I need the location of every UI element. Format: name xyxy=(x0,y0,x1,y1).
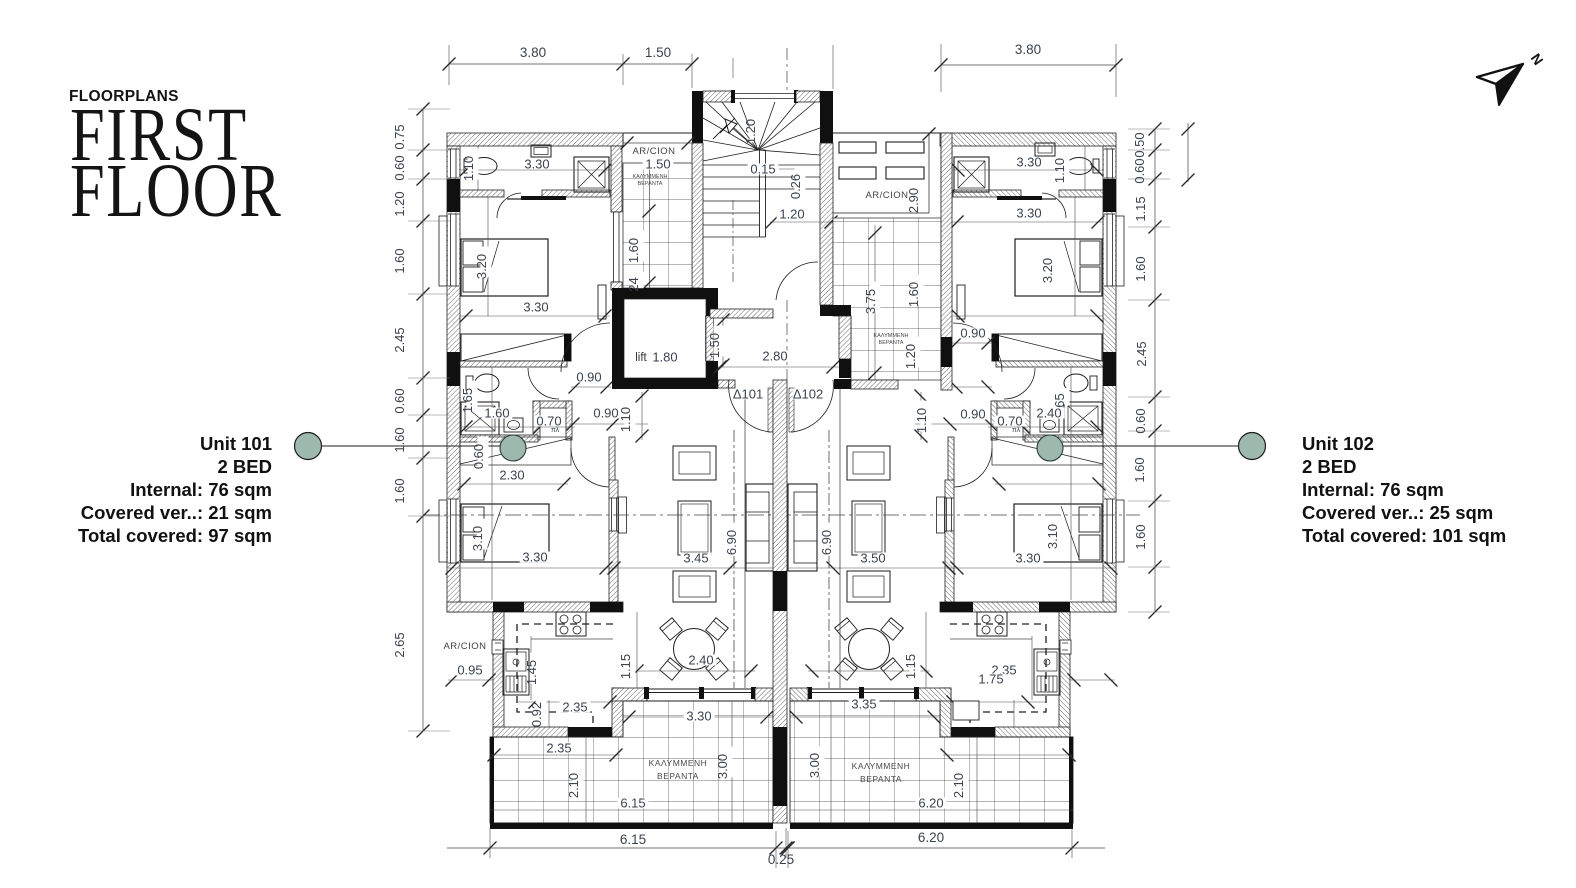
svg-text:FLOOR: FLOOR xyxy=(70,149,282,233)
svg-text:1.20: 1.20 xyxy=(903,344,918,369)
svg-text:0.60: 0.60 xyxy=(392,155,407,180)
svg-text:1.80: 1.80 xyxy=(652,350,677,365)
svg-text:1.10: 1.10 xyxy=(618,407,633,432)
svg-text:6.20: 6.20 xyxy=(918,796,943,811)
svg-text:2.35: 2.35 xyxy=(546,741,571,756)
svg-text:1.20: 1.20 xyxy=(779,207,804,222)
svg-text:0.90: 0.90 xyxy=(960,326,985,341)
svg-text:ΚΑΛΥΜΜΕΝΗ: ΚΑΛΥΜΜΕΝΗ xyxy=(852,761,911,771)
svg-text:6.15: 6.15 xyxy=(620,796,645,811)
svg-text:0.90: 0.90 xyxy=(576,370,601,385)
svg-text:3.80: 3.80 xyxy=(520,45,546,60)
svg-text:1.20: 1.20 xyxy=(392,191,407,216)
svg-text:2.80: 2.80 xyxy=(762,349,787,364)
svg-text:1.50: 1.50 xyxy=(645,45,671,60)
svg-text:0.95: 0.95 xyxy=(457,663,482,678)
svg-text:Δ101: Δ101 xyxy=(733,387,763,402)
svg-text:1.60: 1.60 xyxy=(392,248,407,273)
svg-text:6.90: 6.90 xyxy=(724,530,739,555)
svg-text:1.15: 1.15 xyxy=(903,654,918,679)
svg-text:2.90: 2.90 xyxy=(906,188,921,213)
svg-text:0.60: 0.60 xyxy=(1132,158,1147,183)
svg-text:6.20: 6.20 xyxy=(918,830,944,845)
svg-text:1.60: 1.60 xyxy=(626,238,641,263)
svg-text:3.80: 3.80 xyxy=(1015,42,1041,57)
svg-text:3.30: 3.30 xyxy=(1016,155,1041,170)
svg-text:Unit 102: Unit 102 xyxy=(1302,433,1374,454)
svg-text:0.60: 0.60 xyxy=(1133,408,1148,433)
svg-text:3.10: 3.10 xyxy=(470,526,485,551)
svg-text:3.10: 3.10 xyxy=(1045,524,1060,549)
svg-text:1.65: 1.65 xyxy=(460,388,475,413)
svg-text:1.15: 1.15 xyxy=(1133,196,1148,221)
svg-text:2.65: 2.65 xyxy=(392,632,407,657)
svg-text:3.35: 3.35 xyxy=(851,697,876,712)
svg-text:0.92: 0.92 xyxy=(529,702,544,727)
svg-text:Unit 101: Unit 101 xyxy=(200,433,272,454)
svg-text:3.30: 3.30 xyxy=(1015,551,1040,566)
svg-text:2 BED: 2 BED xyxy=(218,456,273,477)
svg-text:3.30: 3.30 xyxy=(686,709,711,724)
svg-text:ΒΕΡΑΝΤΑ: ΒΕΡΑΝΤΑ xyxy=(638,181,663,187)
svg-text:1.50: 1.50 xyxy=(645,157,670,172)
svg-text:0.60: 0.60 xyxy=(392,388,407,413)
svg-text:3.75: 3.75 xyxy=(863,289,878,314)
svg-text:ΚΑΛΥΜΜΕΝΗ: ΚΑΛΥΜΜΕΝΗ xyxy=(873,333,908,339)
svg-text:2.30: 2.30 xyxy=(499,468,524,483)
svg-text:3.30: 3.30 xyxy=(524,157,549,172)
svg-text:0.90: 0.90 xyxy=(593,406,618,421)
svg-text:Δ102: Δ102 xyxy=(793,387,823,402)
svg-text:AR/CION: AR/CION xyxy=(443,641,486,652)
svg-text:0.50: 0.50 xyxy=(1132,132,1147,157)
svg-text:0.90: 0.90 xyxy=(960,407,985,422)
svg-text:2.40: 2.40 xyxy=(688,653,713,668)
svg-text:1.60: 1.60 xyxy=(1133,524,1148,549)
svg-text:Internal: 76 sqm: Internal: 76 sqm xyxy=(1302,479,1444,500)
svg-text:3.30: 3.30 xyxy=(523,300,548,315)
svg-text:ΒΕΡΑΝΤΑ: ΒΕΡΑΝΤΑ xyxy=(860,774,902,784)
svg-text:3.00: 3.00 xyxy=(807,753,822,778)
svg-text:AR/CION: AR/CION xyxy=(865,190,908,201)
svg-text:1.20: 1.20 xyxy=(743,119,758,144)
svg-text:1.60: 1.60 xyxy=(392,427,407,452)
svg-text:1.60: 1.60 xyxy=(392,478,407,503)
svg-text:2.35: 2.35 xyxy=(562,700,587,715)
svg-text:1.15: 1.15 xyxy=(618,654,633,679)
svg-text:Covered ver..: 21 sqm: Covered ver..: 21 sqm xyxy=(81,502,272,523)
svg-text:6.90: 6.90 xyxy=(819,530,834,555)
svg-text:1.10: 1.10 xyxy=(914,408,929,433)
svg-text:1.50: 1.50 xyxy=(707,333,722,358)
svg-text:3.30: 3.30 xyxy=(522,550,547,565)
svg-text:1.60: 1.60 xyxy=(484,406,509,421)
svg-text:Total covered: 101 sqm: Total covered: 101 sqm xyxy=(1302,525,1506,546)
svg-text:ΒΕΡΑΝΤΑ: ΒΕΡΑΝΤΑ xyxy=(657,771,699,781)
svg-text:Internal: 76 sqm: Internal: 76 sqm xyxy=(130,479,272,500)
svg-text:lift: lift xyxy=(635,352,647,364)
svg-text:6.15: 6.15 xyxy=(620,832,646,847)
svg-text:1.10: 1.10 xyxy=(1052,158,1067,183)
svg-text:1.45: 1.45 xyxy=(524,660,539,685)
svg-text:3.30: 3.30 xyxy=(1016,206,1041,221)
svg-text:1.75: 1.75 xyxy=(978,672,1003,687)
svg-text:1.60: 1.60 xyxy=(1132,457,1147,482)
svg-text:1.10: 1.10 xyxy=(461,156,476,181)
svg-text:πλ: πλ xyxy=(1012,427,1021,434)
svg-text:2.45: 2.45 xyxy=(1134,341,1149,366)
svg-text:1.60: 1.60 xyxy=(906,282,921,307)
svg-text:2.40: 2.40 xyxy=(1036,406,1061,421)
svg-text:Total covered: 97 sqm: Total covered: 97 sqm xyxy=(78,525,272,546)
svg-text:2 BED: 2 BED xyxy=(1302,456,1357,477)
svg-text:3.45: 3.45 xyxy=(683,551,708,566)
svg-text:πλ: πλ xyxy=(551,427,560,434)
svg-text:0.26: 0.26 xyxy=(788,174,803,199)
svg-text:AR/CION: AR/CION xyxy=(632,146,675,157)
svg-text:3.20: 3.20 xyxy=(1040,258,1055,283)
svg-text:ΒΕΡΑΝΤΑ: ΒΕΡΑΝΤΑ xyxy=(879,340,904,346)
svg-text:3.50: 3.50 xyxy=(860,551,885,566)
svg-text:0.60: 0.60 xyxy=(471,444,486,469)
svg-text:ΚΑΛΥΜΜΕΝΗ: ΚΑΛΥΜΜΕΝΗ xyxy=(649,758,708,768)
svg-text:2.45: 2.45 xyxy=(392,327,407,352)
svg-text:0.75: 0.75 xyxy=(392,124,407,149)
svg-text:3.20: 3.20 xyxy=(474,254,489,279)
svg-text:0.25: 0.25 xyxy=(768,852,794,867)
svg-text:2.10: 2.10 xyxy=(951,773,966,798)
svg-text:1.60: 1.60 xyxy=(1133,256,1148,281)
svg-text:2.10: 2.10 xyxy=(566,773,581,798)
svg-text:0.15: 0.15 xyxy=(750,162,775,177)
svg-text:Covered ver..: 25 sqm: Covered ver..: 25 sqm xyxy=(1302,502,1493,523)
svg-text:ΚΑΛΥΜΜΕΝΗ: ΚΑΛΥΜΜΕΝΗ xyxy=(632,174,667,180)
svg-text:3.00: 3.00 xyxy=(715,754,730,779)
svg-text:24: 24 xyxy=(626,277,641,291)
